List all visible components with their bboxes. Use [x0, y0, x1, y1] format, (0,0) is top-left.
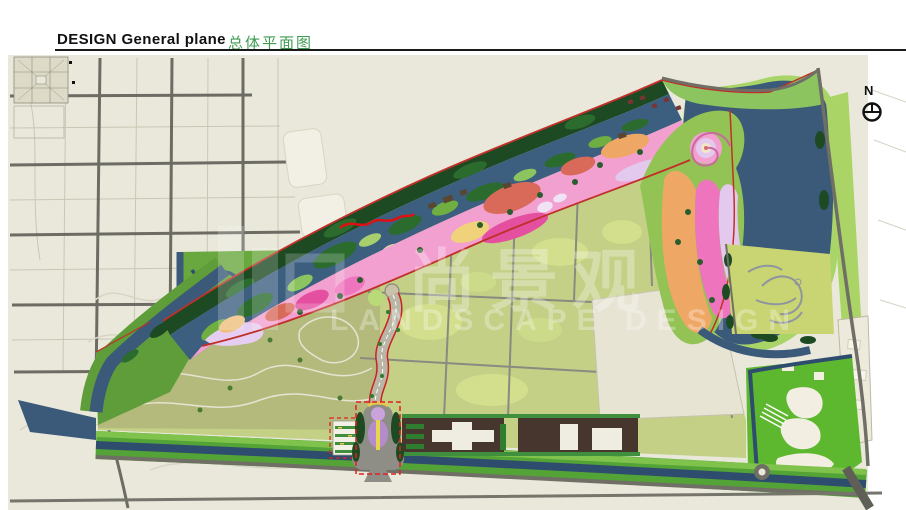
north-label: N	[864, 83, 873, 98]
north-arrow-icon	[863, 103, 882, 121]
masterplan-sheet: DESIGN General plane 总体平面图 N 尚景观 LANDSCA…	[0, 0, 906, 510]
header-rule	[55, 49, 906, 51]
bullet-dot	[72, 81, 75, 84]
sheet-title-en: DESIGN General plane	[57, 31, 226, 48]
phoenix-field	[722, 244, 834, 344]
site-plan-drawing	[0, 0, 906, 510]
bullet-dot	[69, 61, 72, 64]
